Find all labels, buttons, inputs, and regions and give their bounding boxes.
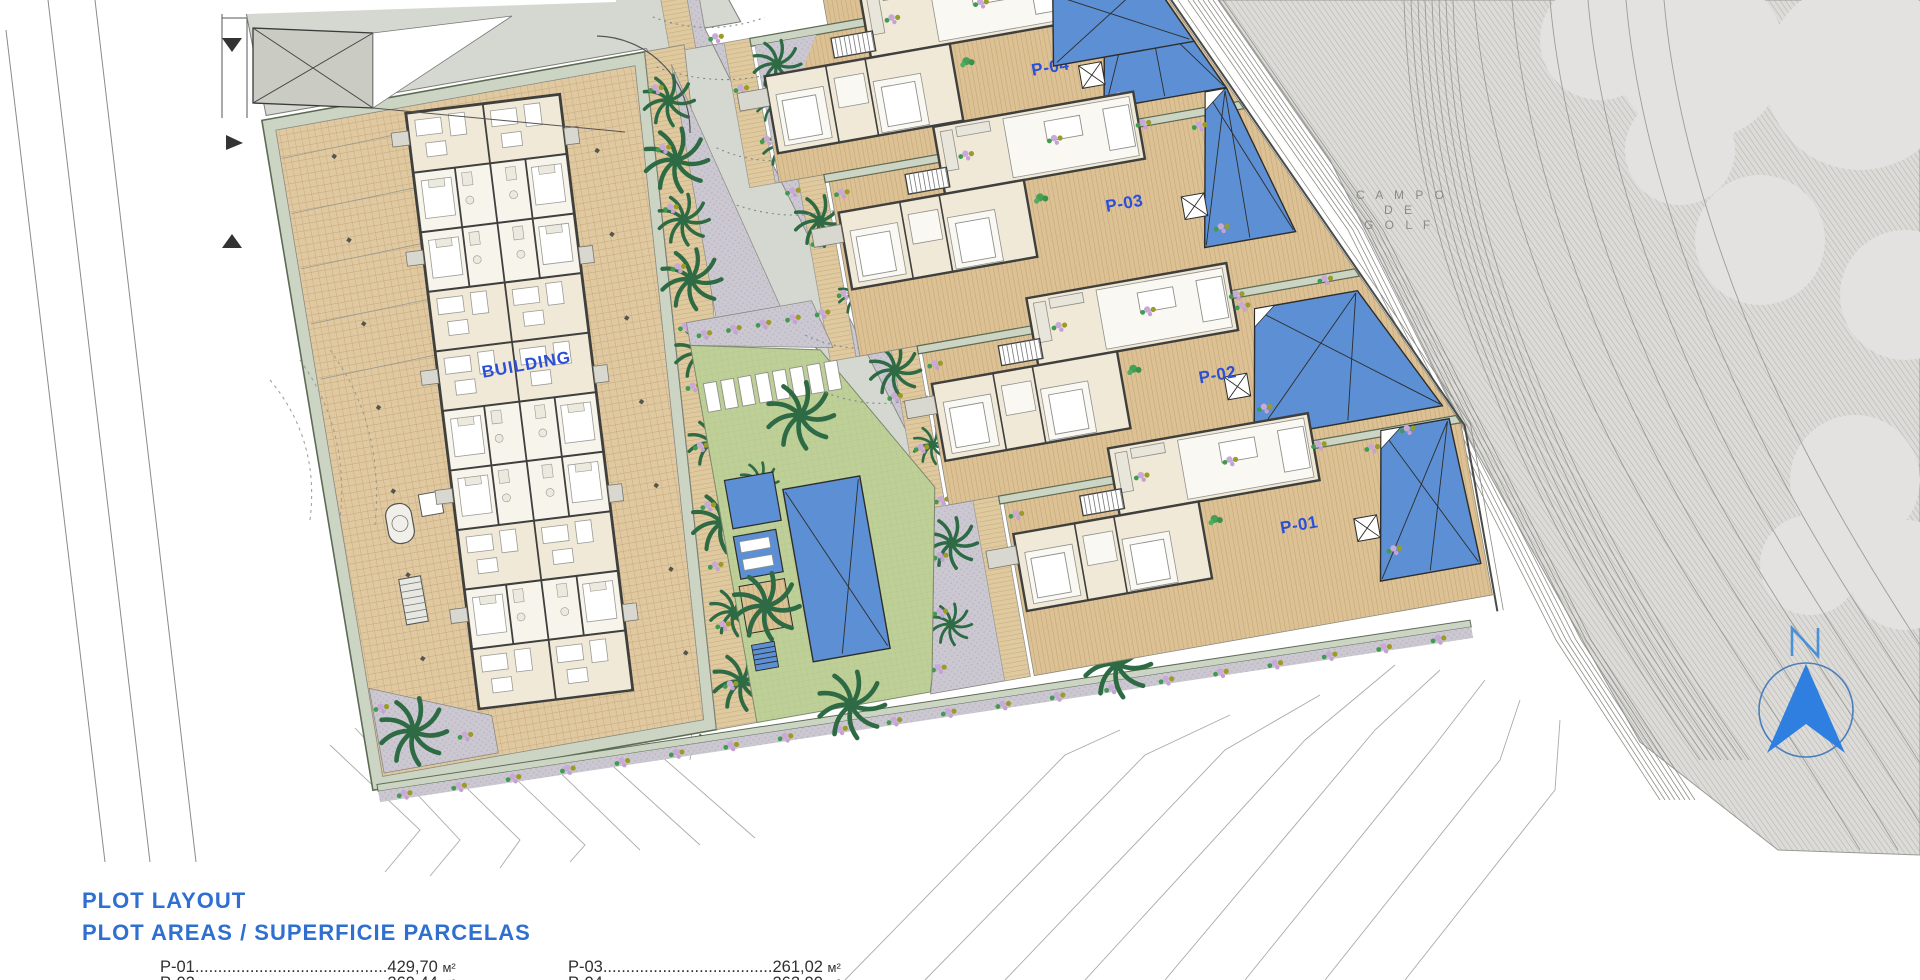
- svg-text:P-02..........................: P-02....................................…: [160, 974, 456, 980]
- svg-text:PLOT AREAS / SUPERFICIE PARCEL: PLOT AREAS / SUPERFICIE PARCELAS: [82, 920, 531, 945]
- svg-text:C A M P O: C A M P O: [1356, 188, 1448, 202]
- svg-text:G O L F: G O L F: [1364, 218, 1434, 232]
- svg-text:D E: D E: [1384, 203, 1416, 217]
- svg-text:PLOT LAYOUT: PLOT LAYOUT: [82, 888, 246, 913]
- svg-text:P-04..........................: P-04....................................…: [568, 974, 841, 980]
